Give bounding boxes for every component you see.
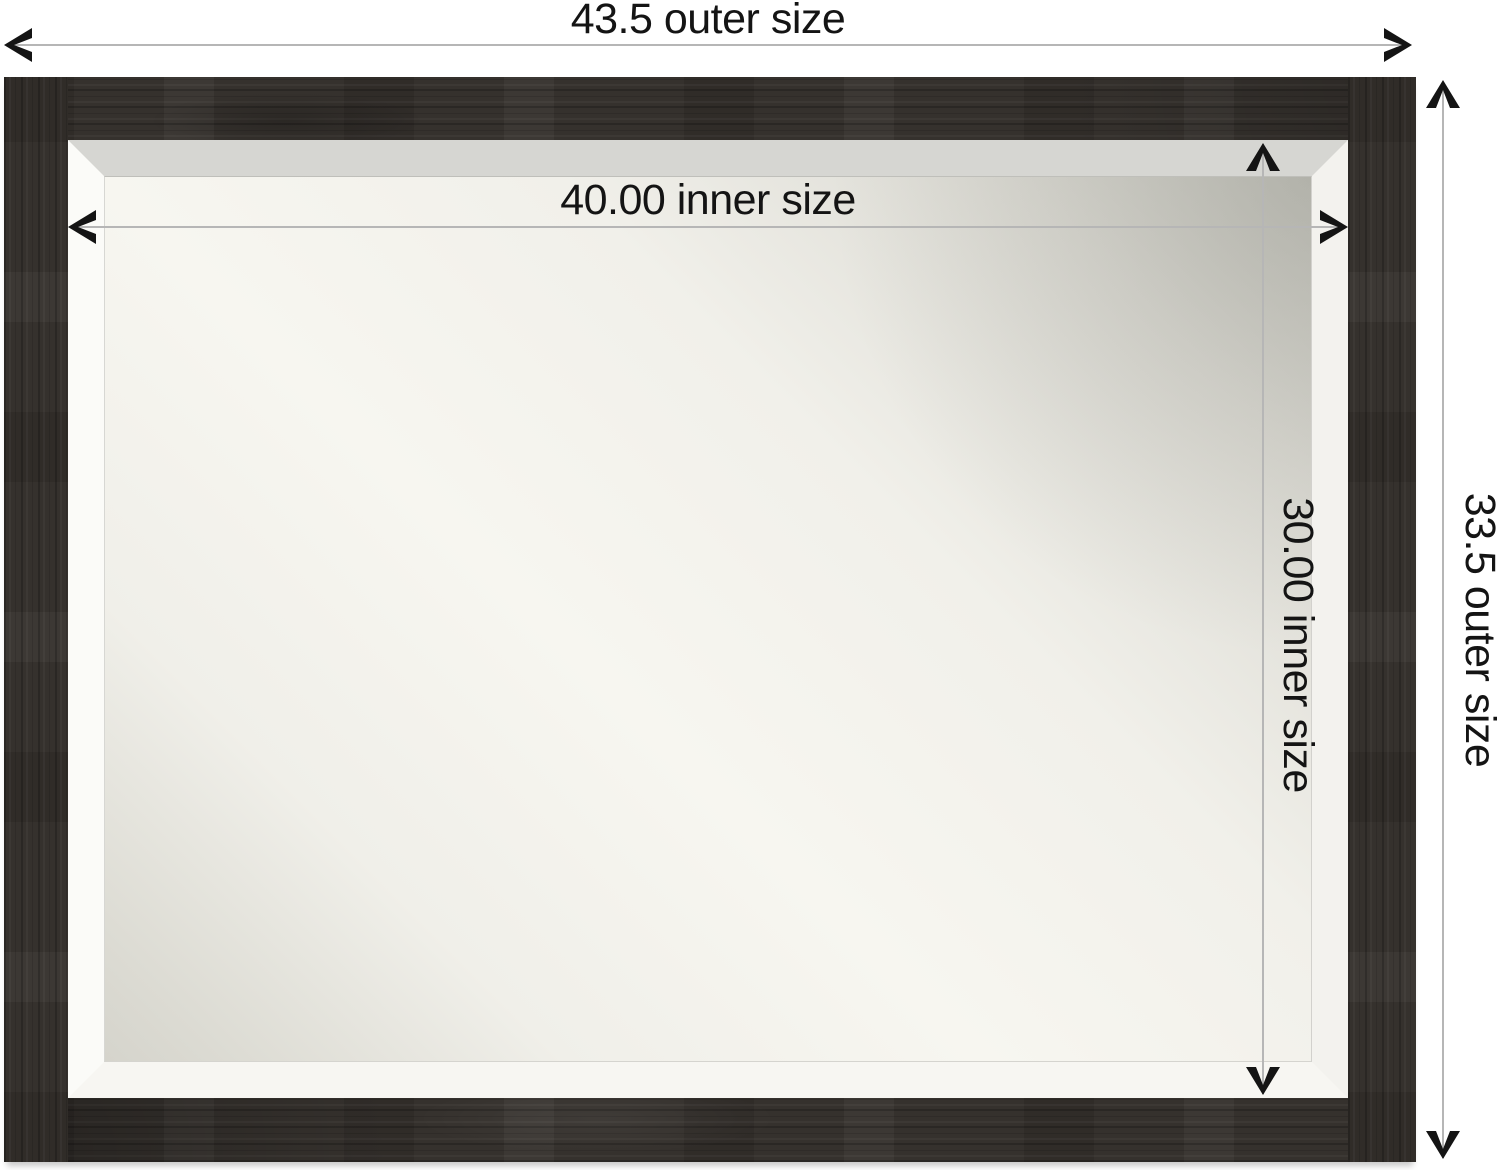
arrow-left-icon [68, 210, 96, 244]
mirror-dimension-diagram: 43.5 outer size 40.00 inner size 30.00 i… [0, 0, 1500, 1170]
mirror-opening [68, 140, 1348, 1098]
mirror-glass [105, 177, 1311, 1061]
inner-width-line [72, 226, 1344, 228]
mirror-frame [4, 77, 1416, 1162]
inner-height-line [1262, 144, 1264, 1094]
arrow-up-icon [1426, 80, 1460, 108]
arrow-right-icon [1320, 210, 1348, 244]
arrow-right-icon [1384, 28, 1412, 62]
frame-left-rail [4, 77, 68, 1162]
outer-height-label: 33.5 outer size [1458, 493, 1500, 768]
arrow-left-icon [4, 28, 32, 62]
outer-width-label: 43.5 outer size [571, 0, 846, 41]
arrow-up-icon [1246, 143, 1280, 171]
inner-height-label: 30.00 inner size [1276, 497, 1320, 793]
outer-width-line [10, 44, 1406, 46]
inner-width-label: 40.00 inner size [560, 178, 856, 222]
arrow-down-icon [1246, 1067, 1280, 1095]
arrow-down-icon [1426, 1131, 1460, 1159]
outer-height-line [1442, 82, 1444, 1158]
frame-right-rail [1348, 77, 1416, 1162]
